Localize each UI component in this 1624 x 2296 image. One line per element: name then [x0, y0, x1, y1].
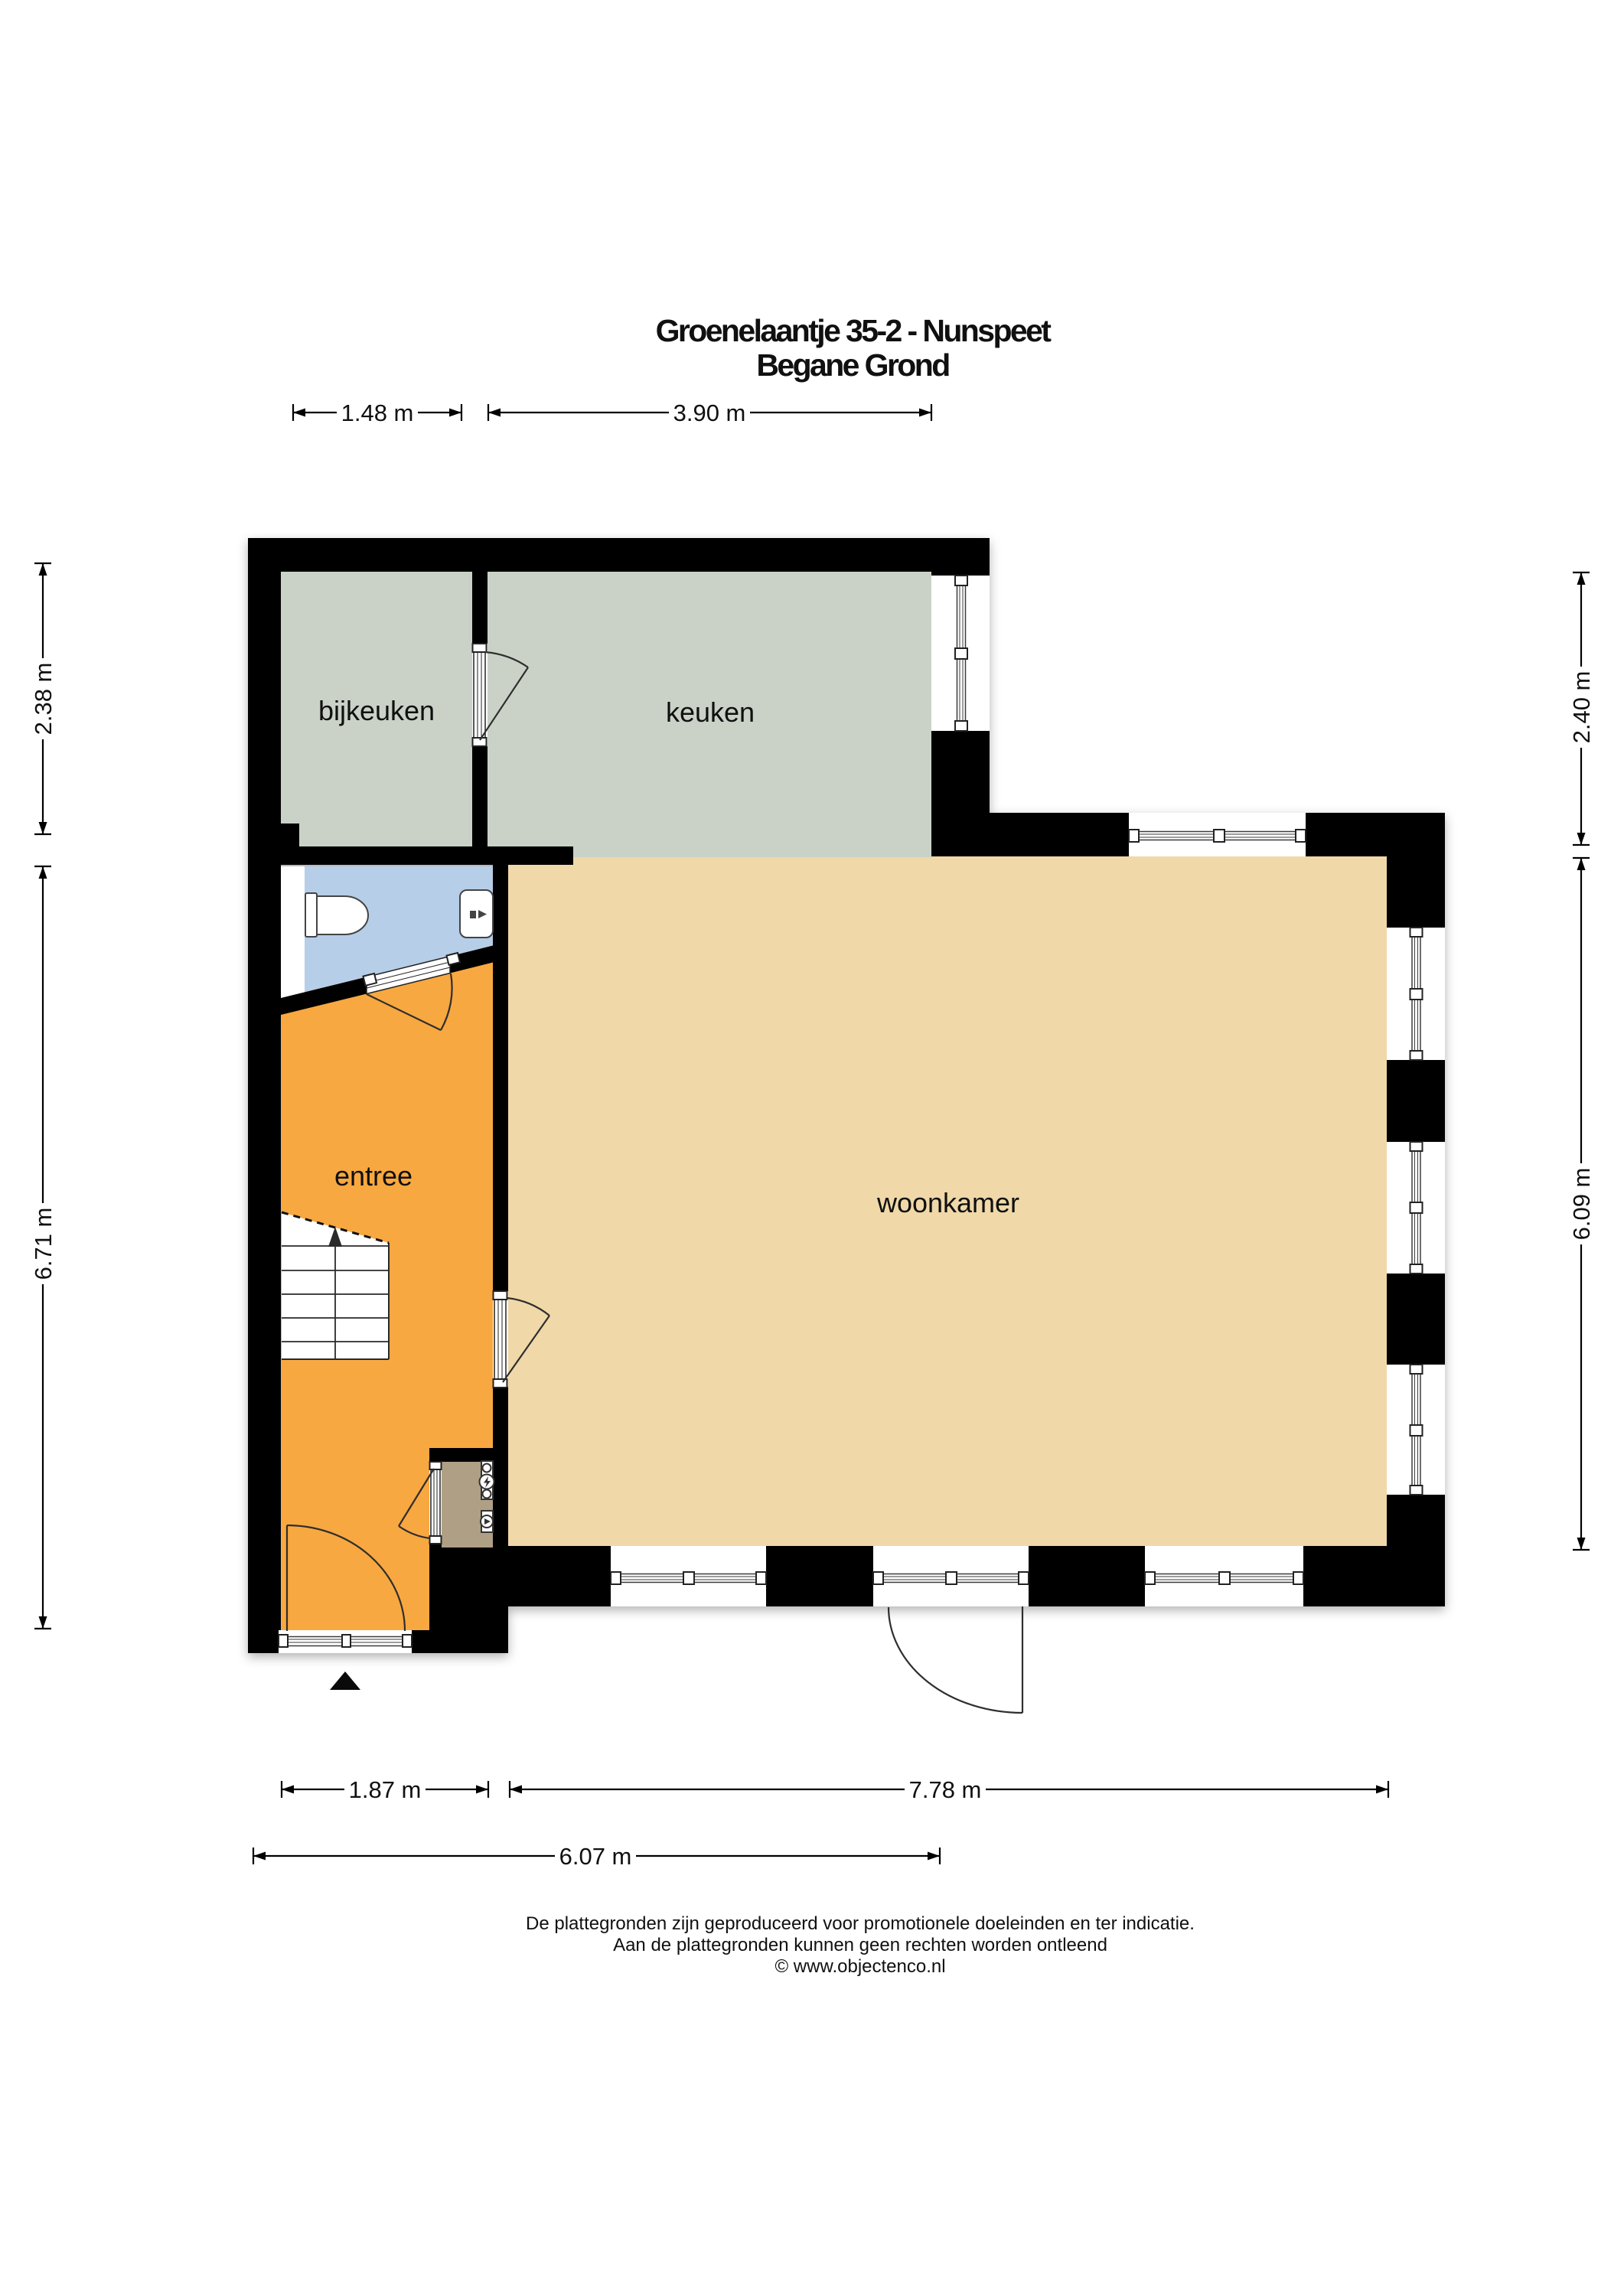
svg-text:woonkamer: woonkamer [876, 1187, 1019, 1218]
svg-text:1.87 m: 1.87 m [349, 1776, 422, 1803]
svg-text:Groenelaantje 35-2 - Nunspeet: Groenelaantje 35-2 - Nunspeet [656, 313, 1052, 348]
svg-text:Aan de plattegronden kunnen ge: Aan de plattegronden kunnen geen rechten… [613, 1935, 1107, 1955]
svg-text:2.40 m: 2.40 m [1568, 671, 1595, 744]
svg-text:Begane Grond: Begane Grond [756, 347, 949, 383]
svg-text:entree: entree [334, 1160, 413, 1192]
svg-text:2.38 m: 2.38 m [30, 663, 57, 735]
svg-text:© www.objectenco.nl: © www.objectenco.nl [774, 1956, 945, 1977]
svg-text:keuken: keuken [666, 696, 755, 728]
svg-text:De plattegronden zijn geproduc: De plattegronden zijn geproduceerd voor … [526, 1913, 1195, 1934]
svg-text:6.07 m: 6.07 m [559, 1843, 632, 1870]
svg-text:1.48 m: 1.48 m [341, 400, 414, 426]
svg-text:bijkeuken: bijkeuken [318, 695, 435, 726]
svg-text:3.90 m: 3.90 m [673, 400, 746, 426]
svg-text:6.71 m: 6.71 m [30, 1208, 57, 1280]
svg-text:6.09 m: 6.09 m [1568, 1168, 1595, 1241]
svg-text:7.78 m: 7.78 m [909, 1776, 982, 1803]
